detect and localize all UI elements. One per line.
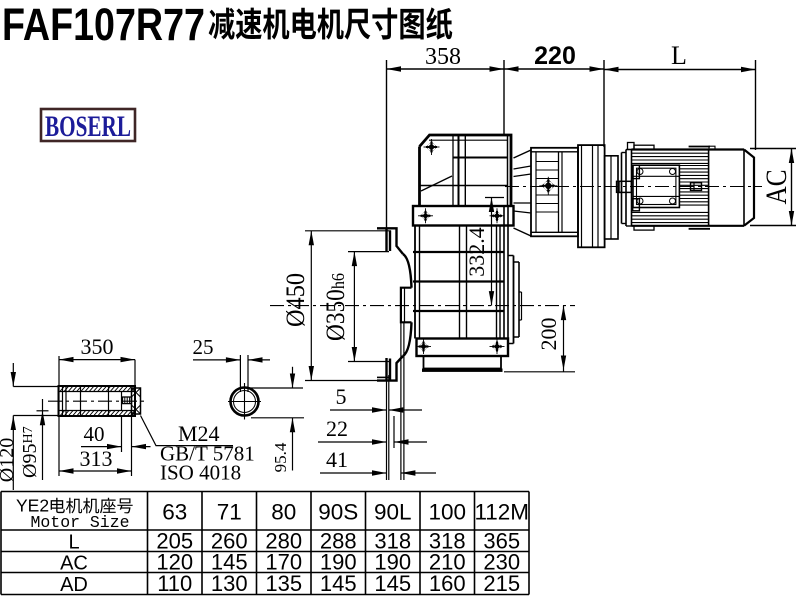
- svg-text:112M: 112M: [474, 500, 529, 525]
- svg-text:Ø120: Ø120: [0, 438, 18, 482]
- svg-text:AC: AC: [760, 170, 793, 205]
- svg-text:Ø450: Ø450: [281, 273, 310, 327]
- svg-text:215: 215: [483, 571, 520, 596]
- svg-text:90S: 90S: [318, 500, 358, 525]
- svg-text:332.4: 332.4: [464, 227, 489, 277]
- svg-text:40: 40: [84, 422, 105, 446]
- svg-text:41: 41: [326, 447, 348, 472]
- svg-text:135: 135: [265, 571, 302, 596]
- svg-text:BOSERL: BOSERL: [45, 110, 131, 143]
- svg-text:71: 71: [217, 500, 242, 525]
- svg-text:110: 110: [157, 571, 192, 596]
- svg-text:160: 160: [429, 571, 466, 596]
- svg-text:130: 130: [211, 571, 248, 596]
- svg-text:145: 145: [320, 571, 357, 596]
- svg-text:AC: AC: [60, 553, 88, 575]
- svg-text:22: 22: [326, 416, 348, 441]
- svg-text:145: 145: [374, 571, 411, 596]
- svg-text:25: 25: [193, 335, 214, 359]
- svg-text:100: 100: [428, 500, 466, 525]
- svg-text:L: L: [671, 41, 687, 70]
- svg-text:90L: 90L: [374, 500, 412, 525]
- svg-text:200: 200: [536, 318, 561, 351]
- svg-text:AD: AD: [60, 574, 88, 596]
- svg-text:313: 313: [80, 446, 113, 471]
- svg-text:220: 220: [534, 42, 576, 70]
- svg-text:ISO 4018: ISO 4018: [160, 461, 241, 485]
- svg-text:5: 5: [336, 384, 347, 409]
- svg-text:358: 358: [425, 44, 461, 70]
- svg-text:FAF107R77: FAF107R77: [2, 0, 205, 50]
- svg-text:Motor Size: Motor Size: [30, 513, 129, 532]
- svg-text:L: L: [68, 532, 79, 554]
- svg-text:80: 80: [271, 500, 296, 525]
- svg-text:63: 63: [162, 500, 187, 525]
- svg-text:350: 350: [81, 334, 114, 359]
- svg-text:95.4: 95.4: [271, 442, 290, 472]
